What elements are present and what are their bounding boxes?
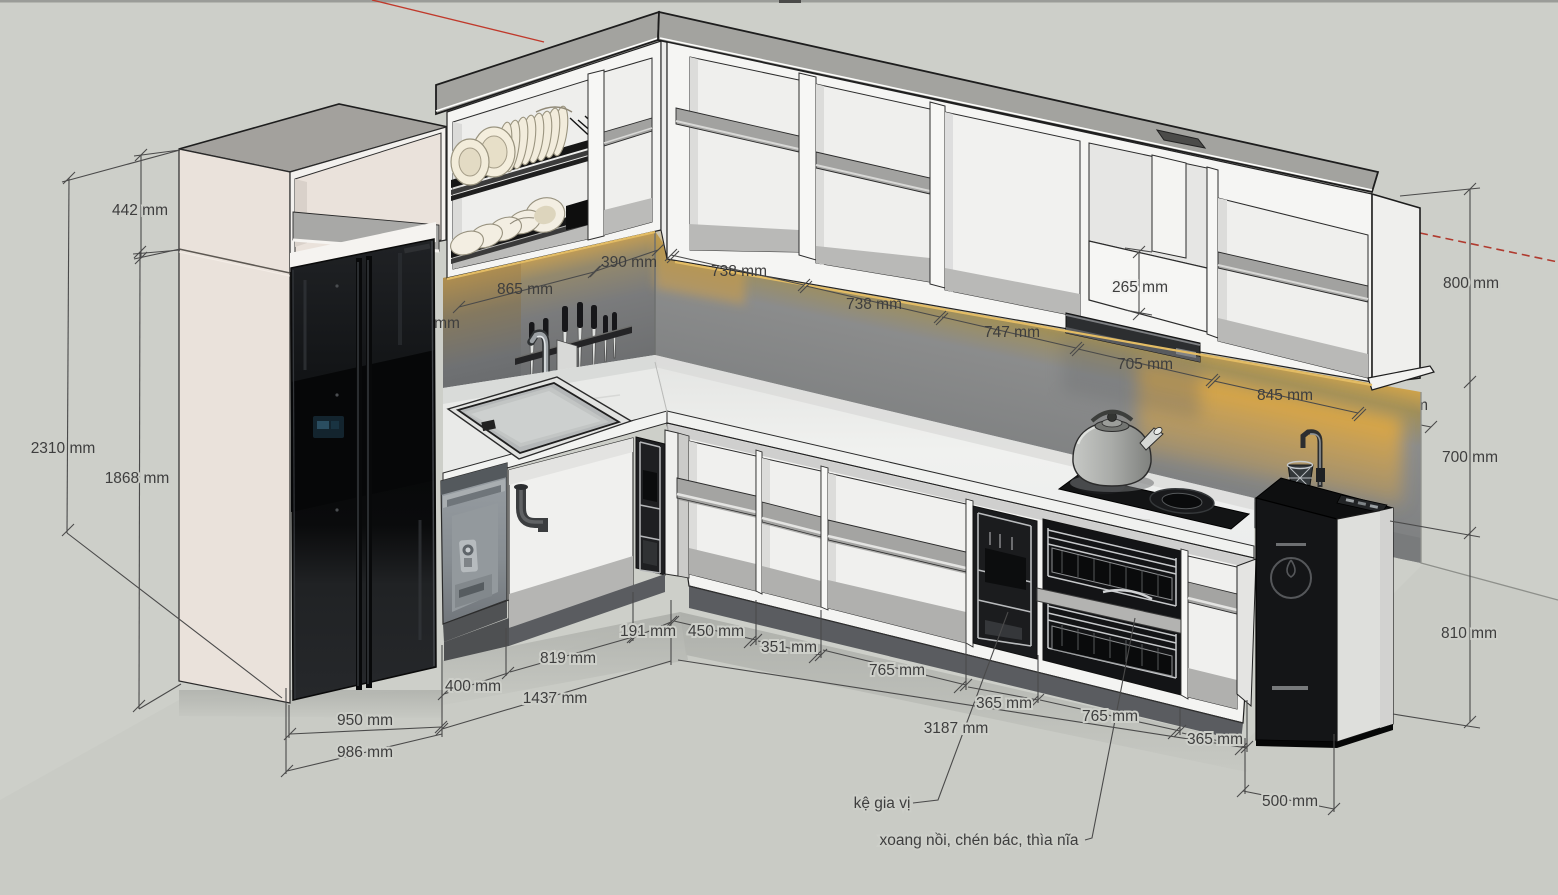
svg-text:1868 mm: 1868 mm xyxy=(105,470,170,487)
svg-text:mm: mm xyxy=(434,315,460,332)
svg-text:865 mm: 865 mm xyxy=(497,281,553,298)
svg-text:738 mm: 738 mm xyxy=(711,263,767,280)
svg-text:365 mm: 365 mm xyxy=(1187,731,1243,748)
svg-text:700 mm: 700 mm xyxy=(1442,449,1498,466)
svg-text:265 mm: 265 mm xyxy=(1112,279,1168,296)
svg-text:450 mm: 450 mm xyxy=(688,623,744,640)
svg-text:400 mm: 400 mm xyxy=(445,678,501,695)
svg-text:845 mm: 845 mm xyxy=(1257,387,1313,404)
svg-text:765 mm: 765 mm xyxy=(869,662,925,679)
svg-text:819 mm: 819 mm xyxy=(540,650,596,667)
svg-text:xoang nồi, chén bác, thìa nĩa: xoang nồi, chén bác, thìa nĩa xyxy=(879,832,1078,849)
svg-text:191 mm: 191 mm xyxy=(620,623,676,640)
svg-text:986 mm: 986 mm xyxy=(337,744,393,761)
svg-text:1437 mm: 1437 mm xyxy=(523,690,588,707)
svg-text:390 mm: 390 mm xyxy=(601,254,657,271)
svg-text:950 mm: 950 mm xyxy=(337,712,393,729)
svg-text:765 mm: 765 mm xyxy=(1082,708,1138,725)
svg-text:351 mm: 351 mm xyxy=(761,639,817,656)
svg-text:442 mm: 442 mm xyxy=(112,202,168,219)
svg-text:800 mm: 800 mm xyxy=(1443,275,1499,292)
svg-text:810 mm: 810 mm xyxy=(1441,625,1497,642)
svg-text:500 mm: 500 mm xyxy=(1262,793,1318,810)
svg-text:738 mm: 738 mm xyxy=(846,296,902,313)
svg-text:3187 mm: 3187 mm xyxy=(924,720,989,737)
svg-text:365 mm: 365 mm xyxy=(976,695,1032,712)
svg-text:2310 mm: 2310 mm xyxy=(31,440,96,457)
svg-text:747 mm: 747 mm xyxy=(984,324,1040,341)
svg-text:kệ gia vị: kệ gia vị xyxy=(854,795,911,812)
svg-text:705 mm: 705 mm xyxy=(1117,356,1173,373)
